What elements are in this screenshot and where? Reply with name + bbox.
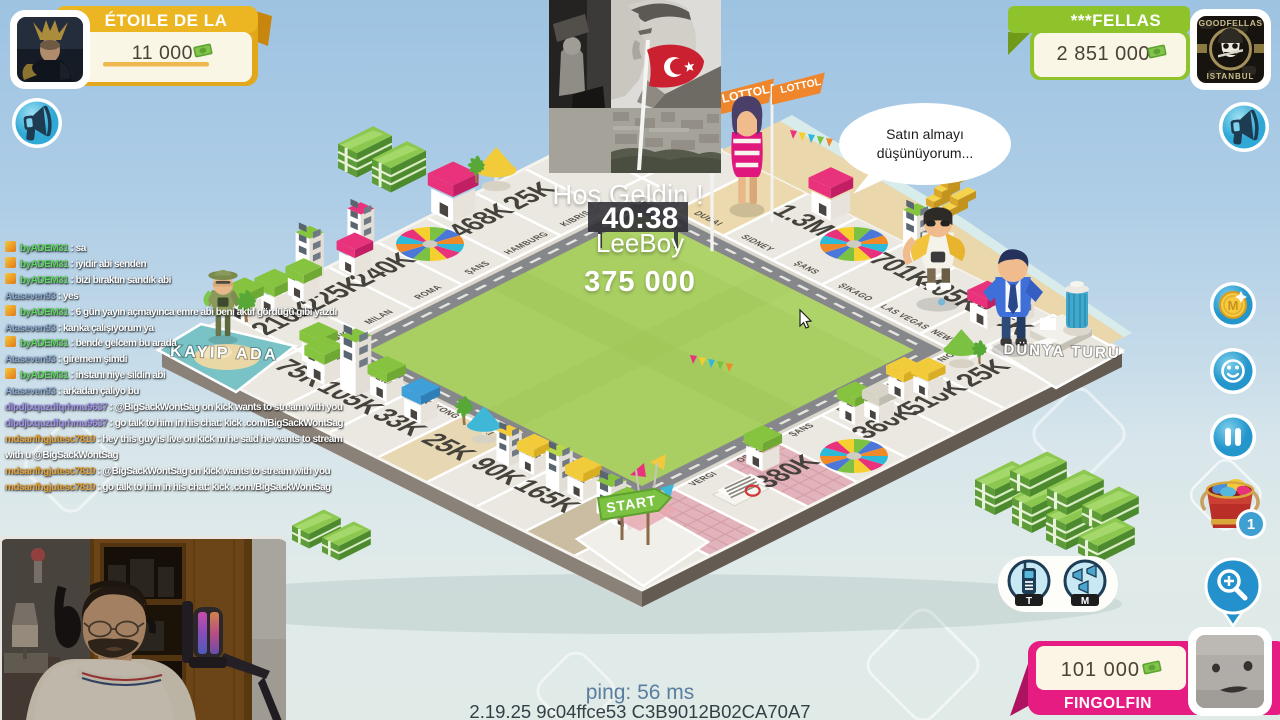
svg-text:T: T — [1026, 596, 1032, 607]
svg-text:101 000: 101 000 — [1061, 659, 1140, 681]
svg-text:M: M — [1081, 596, 1089, 607]
svg-text:1: 1 — [1247, 516, 1255, 533]
svg-text:M: M — [1228, 298, 1239, 313]
